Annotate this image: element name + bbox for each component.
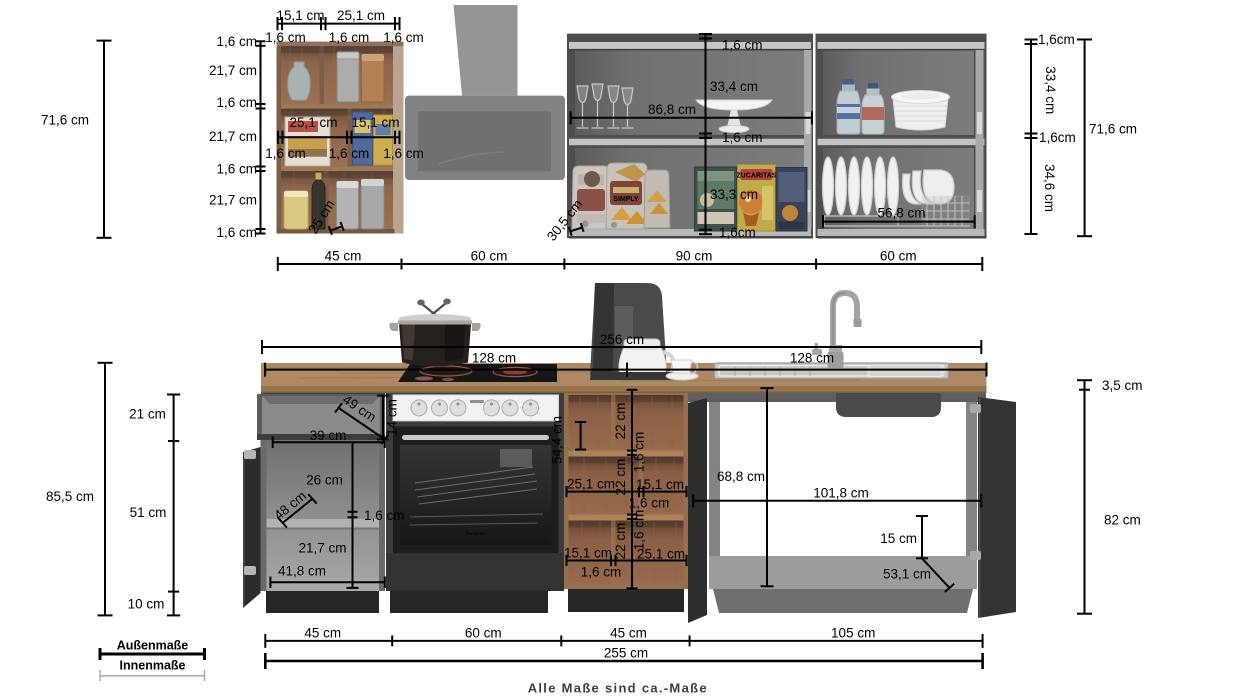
svg-text:60 cm: 60 cm — [880, 249, 917, 264]
svg-text:15,1 cm: 15,1 cm — [564, 546, 612, 561]
svg-text:45 cm: 45 cm — [304, 625, 341, 640]
svg-text:Außenmaße: Außenmaße — [117, 639, 189, 653]
svg-text:68,8 cm: 68,8 cm — [717, 469, 765, 484]
svg-text:ZUCARITAS: ZUCARITAS — [737, 173, 777, 180]
svg-text:60 cm: 60 cm — [471, 249, 508, 264]
svg-text:90 cm: 90 cm — [676, 249, 713, 264]
svg-text:1,6cm: 1,6cm — [1039, 130, 1076, 145]
svg-text:Alle Maße sind ca.-Maße: Alle Maße sind ca.-Maße — [528, 681, 708, 696]
svg-text:22 cm: 22 cm — [613, 459, 628, 496]
svg-text:53,1 cm: 53,1 cm — [883, 567, 931, 582]
svg-text:101,8 cm: 101,8 cm — [813, 486, 869, 501]
svg-text:33,4 cm: 33,4 cm — [1043, 66, 1058, 114]
svg-text:SIMPLY: SIMPLY — [613, 196, 639, 203]
svg-text:128 cm: 128 cm — [790, 351, 834, 366]
svg-text:1,6 cm: 1,6 cm — [216, 225, 257, 240]
svg-text:60 cm: 60 cm — [465, 625, 502, 640]
svg-text:71,6 cm: 71,6 cm — [1089, 122, 1137, 137]
svg-text:22 cm: 22 cm — [613, 523, 628, 560]
svg-text:86,8 cm: 86,8 cm — [648, 102, 696, 117]
svg-text:1,6 cm: 1,6 cm — [265, 146, 306, 161]
svg-text:45 cm: 45 cm — [325, 249, 362, 264]
svg-text:Panasonic: Panasonic — [465, 531, 487, 536]
svg-text:1,6 cm: 1,6 cm — [632, 432, 647, 473]
svg-text:25,1 cm: 25,1 cm — [289, 115, 337, 130]
svg-text:256 cm: 256 cm — [600, 332, 644, 347]
svg-text:10 cm: 10 cm — [128, 596, 165, 611]
svg-text:14 cm: 14 cm — [385, 399, 400, 436]
svg-text:82 cm: 82 cm — [1104, 513, 1141, 528]
svg-text:105 cm: 105 cm — [831, 625, 875, 640]
svg-text:85,5 cm: 85,5 cm — [46, 489, 94, 504]
svg-text:39 cm: 39 cm — [310, 428, 347, 443]
svg-text:1,6 cm: 1,6 cm — [329, 30, 370, 45]
svg-text:1,6 cm: 1,6 cm — [265, 30, 306, 45]
svg-text:71,6 cm: 71,6 cm — [41, 113, 89, 128]
svg-text:34,6 cm: 34,6 cm — [1042, 164, 1057, 212]
svg-text:51 cm: 51 cm — [130, 505, 167, 520]
svg-text:33,4 cm: 33,4 cm — [710, 79, 758, 94]
svg-text:41,8 cm: 41,8 cm — [278, 564, 326, 579]
svg-text:22 cm: 22 cm — [613, 403, 628, 440]
svg-text:1,6 cm: 1,6 cm — [722, 38, 763, 53]
svg-text:1,6 cm: 1,6 cm — [632, 510, 647, 551]
svg-text:1,6 cm: 1,6 cm — [722, 130, 763, 145]
svg-text:128 cm: 128 cm — [472, 351, 516, 366]
svg-text:25,1 cm: 25,1 cm — [637, 547, 685, 562]
svg-text:1,6 cm: 1,6 cm — [383, 30, 424, 45]
svg-text:15,1 cm: 15,1 cm — [636, 477, 684, 492]
svg-text:1,6 cm: 1,6 cm — [216, 34, 257, 49]
svg-text:1,6cm: 1,6cm — [1038, 32, 1075, 47]
svg-text:21 cm: 21 cm — [129, 407, 166, 422]
svg-text:1,6 cm: 1,6 cm — [383, 146, 424, 161]
svg-text:1,6 cm: 1,6 cm — [329, 146, 370, 161]
svg-text:1,6 cm: 1,6 cm — [581, 565, 622, 580]
svg-text:33,3 cm: 33,3 cm — [710, 187, 758, 202]
svg-text:45 cm: 45 cm — [610, 625, 647, 640]
svg-text:54,4 cm: 54,4 cm — [550, 416, 565, 464]
svg-text:1,6 cm: 1,6 cm — [216, 162, 257, 177]
svg-text:25,1 cm: 25,1 cm — [337, 8, 385, 23]
svg-text:1,6 cm: 1,6 cm — [216, 95, 257, 110]
svg-text:1,6 cm: 1,6 cm — [364, 508, 405, 523]
svg-text:26 cm: 26 cm — [306, 473, 343, 488]
svg-text:21,7 cm: 21,7 cm — [298, 541, 346, 556]
svg-text:56,8 cm: 56,8 cm — [877, 206, 925, 221]
svg-text:15 cm: 15 cm — [880, 531, 917, 546]
svg-text:1,6cm: 1,6cm — [719, 225, 756, 240]
svg-text:15,1 cm: 15,1 cm — [276, 8, 324, 23]
svg-text:21,7 cm: 21,7 cm — [209, 129, 257, 144]
svg-text:15,1 cm: 15,1 cm — [351, 115, 399, 130]
svg-text:21,7 cm: 21,7 cm — [209, 63, 257, 78]
svg-text:Innenmaße: Innenmaße — [120, 659, 186, 673]
svg-text:1,6 cm: 1,6 cm — [629, 496, 670, 511]
svg-text:255 cm: 255 cm — [604, 646, 648, 661]
svg-text:21,7 cm: 21,7 cm — [209, 193, 257, 208]
svg-text:3,5 cm: 3,5 cm — [1102, 378, 1143, 393]
svg-text:25,1 cm: 25,1 cm — [567, 477, 615, 492]
